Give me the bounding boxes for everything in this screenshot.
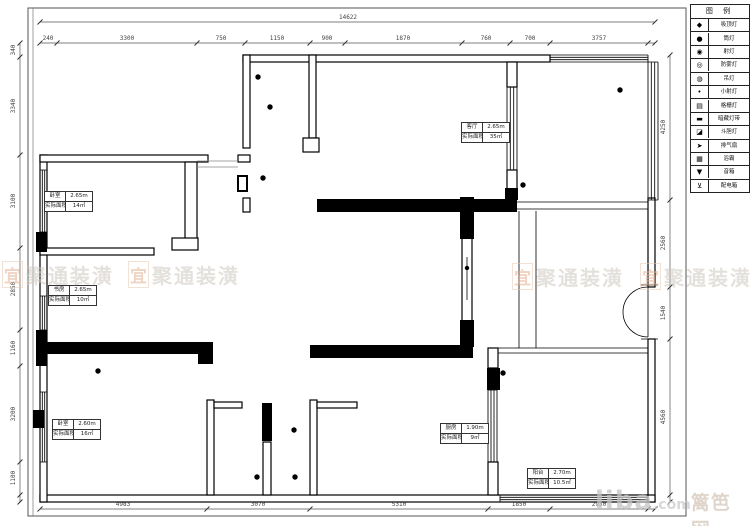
room-name: 阳台 [528, 469, 549, 479]
legend-table: 图 例 ◆吸顶灯 ●筒灯 ◉射灯 ◎防雾灯 ◍吊灯 •小射灯 ▤格栅灯 ▬暗藏灯… [690, 4, 750, 193]
dim-label: 760 [481, 35, 492, 42]
dim-label: 3300 [120, 35, 135, 42]
room-area: 10㎡ [70, 296, 96, 305]
site-watermark: liba .com 篱笆网 [595, 486, 750, 526]
dim-label: 1870 [396, 35, 411, 42]
room-label-bedroom-north: 卧室2.65m 实际面积14㎡ [44, 191, 93, 212]
legend-row: •小射灯 [691, 86, 749, 99]
site-watermark-suffix: .com [653, 497, 691, 513]
legend-label: 射灯 [709, 46, 749, 58]
room-area: 9㎡ [462, 434, 488, 443]
room-height: 2.65m [70, 286, 96, 296]
legend-label: 斗胆灯 [709, 126, 749, 138]
mini-spot-icon: • [691, 86, 709, 98]
dim-label: 3757 [592, 35, 607, 42]
floorplan-drawing: 14622 240 3300 750 1150 900 1870 760 700… [0, 0, 750, 526]
legend-row: ▤格栅灯 [691, 99, 749, 112]
legend-label: 防雾灯 [709, 59, 749, 71]
floorplan-sheet: 14622 240 3300 750 1150 900 1870 760 700… [0, 0, 750, 526]
dim-label: 240 [43, 35, 54, 42]
legend-label: 浴霸 [709, 153, 749, 165]
room-label-kitchen: 厨房1.90m 实际面积9㎡ [440, 423, 489, 444]
room-area: 16㎡ [74, 430, 100, 439]
legend-row: ◪斗胆灯 [691, 126, 749, 139]
legend-row: ◉射灯 [691, 46, 749, 59]
pendant-lamp-icon: ◍ [691, 73, 709, 85]
dim-label: 2850 [10, 281, 17, 296]
legend-row: ➤排气扇 [691, 140, 749, 153]
dim-label: 340 [10, 44, 17, 55]
dim-label: 700 [525, 35, 536, 42]
legend-row: ▬暗藏灯带 [691, 113, 749, 126]
dim-label: 4250 [660, 119, 667, 134]
grille-lamp-icon: ▤ [691, 100, 709, 112]
legend-label: 筒灯 [709, 33, 749, 45]
distribution-box-icon: ⊻ [691, 180, 709, 192]
room-area-label: 实际面积 [462, 133, 483, 142]
room-area-label: 实际面积 [441, 434, 462, 443]
dim-label: 3200 [10, 406, 17, 421]
exhaust-fan-icon: ➤ [691, 140, 709, 152]
legend-label: 小射灯 [709, 86, 749, 98]
dim-label: 900 [322, 35, 333, 42]
legend-row: ⊻配电箱 [691, 180, 749, 192]
bath-heater-icon: ▦ [691, 153, 709, 165]
site-watermark-name: 篱笆网 [691, 488, 750, 526]
room-name: 卧室 [53, 420, 74, 430]
room-area-label: 实际面积 [49, 296, 70, 305]
room-label-study: 书房2.65m 实际面积10㎡ [48, 285, 97, 306]
legend-label: 格栅灯 [709, 100, 749, 112]
room-height: 2.70m [549, 469, 575, 479]
legend-row: ◆吸顶灯 [691, 19, 749, 32]
fogproof-lamp-icon: ◎ [691, 59, 709, 71]
room-height: 2.60m [74, 420, 100, 430]
room-name: 卧室 [45, 192, 66, 202]
legend-label: 排气扇 [709, 140, 749, 152]
room-height: 2.65m [483, 123, 509, 133]
dim-label: 3340 [10, 98, 17, 113]
legend-label: 吸顶灯 [709, 19, 749, 31]
speaker-icon: ▼ [691, 166, 709, 178]
room-label-living: 客厅2.65m 实际面积35㎡ [461, 122, 510, 143]
left-dimension-chain: 340 3340 3100 2850 1160 3200 1100 [10, 41, 23, 505]
legend-row: ◎防雾灯 [691, 59, 749, 72]
downlight-icon: ● [691, 33, 709, 45]
room-area-label: 实际面积 [45, 202, 66, 211]
room-name: 客厅 [462, 123, 483, 133]
dim-label: 14622 [339, 14, 357, 21]
room-label-balcony: 阳台2.70m 实际面积10.5㎡ [527, 468, 576, 489]
dim-label: 4560 [660, 409, 667, 424]
dim-label: 2560 [660, 235, 667, 250]
dim-label: 1160 [10, 340, 17, 355]
dim-label: 1100 [10, 470, 17, 485]
legend-label: 吊灯 [709, 73, 749, 85]
legend-row: ▦浴霸 [691, 153, 749, 166]
room-area-label: 实际面积 [53, 430, 74, 439]
room-area: 14㎡ [66, 202, 92, 211]
recessed-lamp-icon: ◪ [691, 126, 709, 138]
room-height: 2.65m [66, 192, 92, 202]
dim-label: 1540 [660, 305, 667, 320]
room-height: 1.90m [462, 424, 488, 434]
site-watermark-brand: liba [595, 486, 653, 516]
legend-label: 音箱 [709, 166, 749, 178]
dim-label: 3100 [10, 193, 17, 208]
dim-label: 750 [216, 35, 227, 42]
spotlight-icon: ◉ [691, 46, 709, 58]
room-name: 书房 [49, 286, 70, 296]
cove-light-icon: ▬ [691, 113, 709, 125]
legend-title: 图 例 [691, 5, 749, 19]
room-area-label: 实际面积 [528, 479, 549, 488]
room-area: 35㎡ [483, 133, 509, 142]
legend-row: ●筒灯 [691, 32, 749, 45]
wall-socket-box [238, 176, 247, 191]
legend-row: ◍吊灯 [691, 73, 749, 86]
room-label-bedroom-south: 卧室2.60m 实际面积16㎡ [52, 419, 101, 440]
room-area: 10.5㎡ [549, 479, 575, 488]
legend-label: 配电箱 [709, 180, 749, 192]
dim-label: 1150 [270, 35, 285, 42]
legend-label: 暗藏灯带 [709, 113, 749, 125]
room-name: 厨房 [441, 424, 462, 434]
legend-row: ▼音箱 [691, 166, 749, 179]
ceiling-lamp-icon: ◆ [691, 19, 709, 31]
sheet-frame [28, 8, 686, 516]
